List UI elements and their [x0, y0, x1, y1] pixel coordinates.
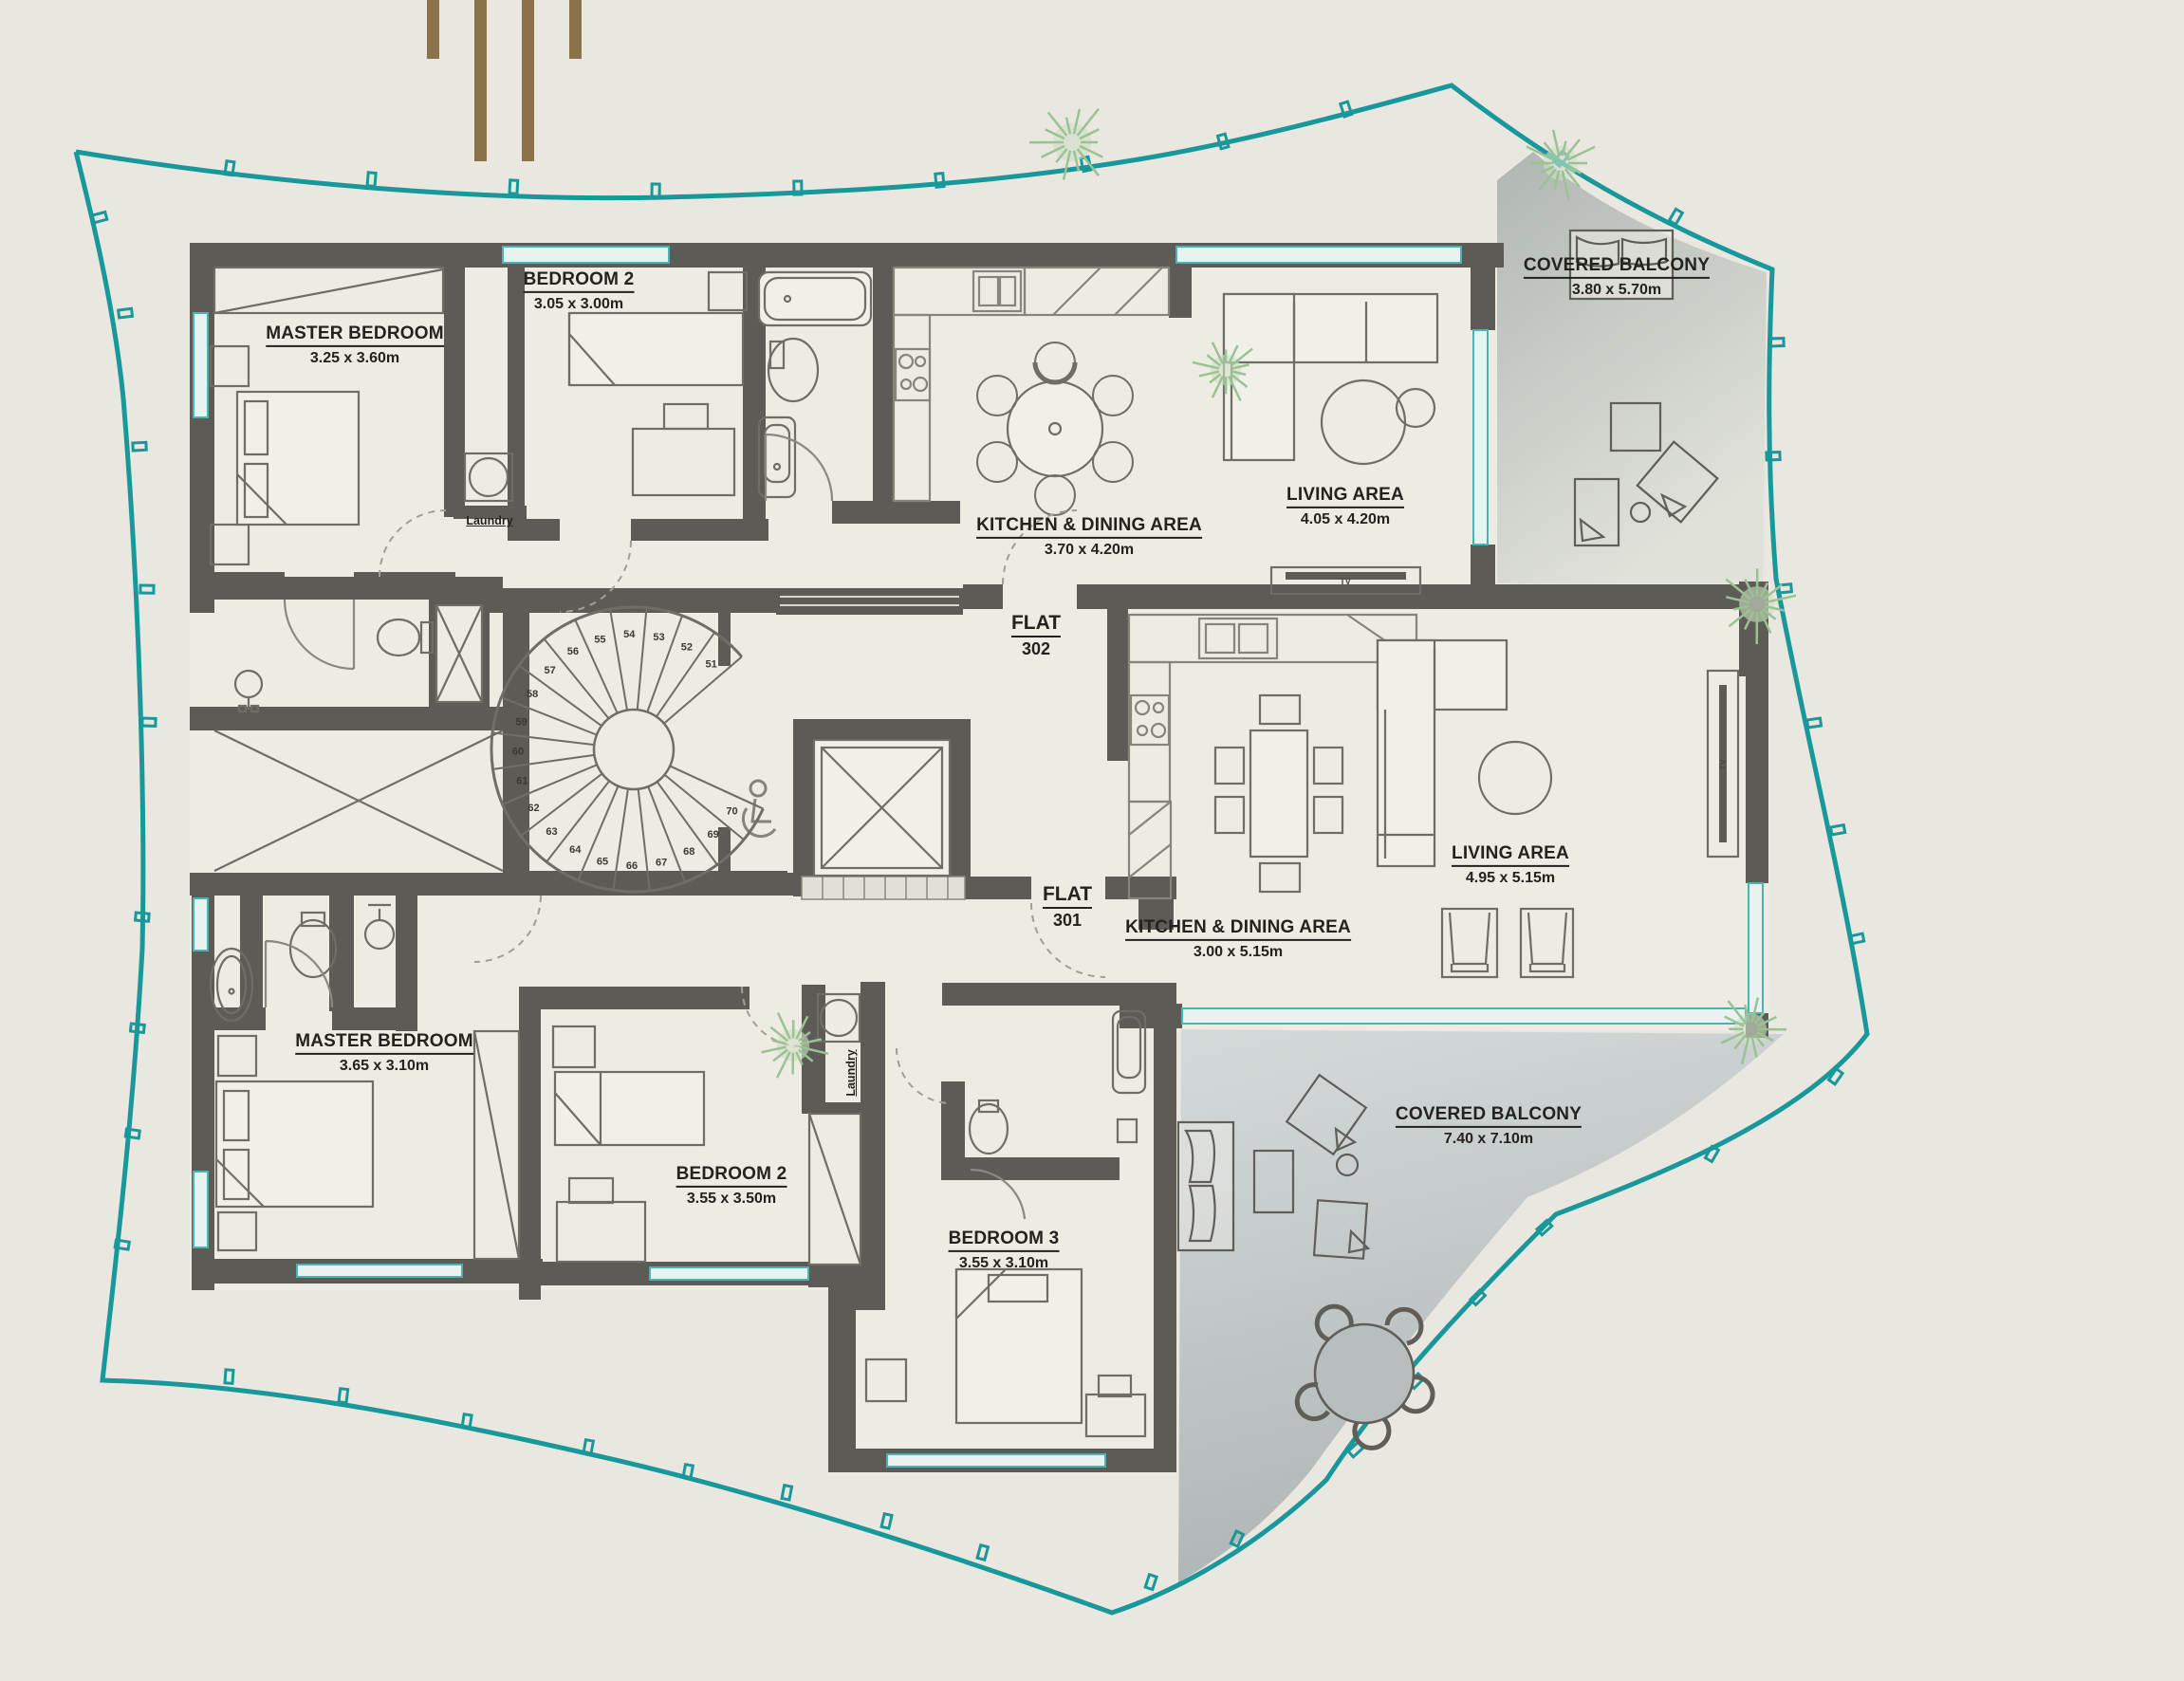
- stair-step-number: 65: [597, 856, 608, 867]
- stair-step-number: 69: [707, 829, 718, 840]
- room-label-302-bedroom2: BEDROOM 23.05 x 3.00m: [524, 269, 635, 313]
- stair-step-number: 66: [626, 860, 638, 872]
- stair-step-number: 63: [546, 826, 557, 838]
- room-label-302-living: LIVING AREA4.05 x 4.20m: [1286, 485, 1404, 528]
- entry-mat: [802, 877, 965, 899]
- bed-301-bedroom3-icon: [956, 1269, 1082, 1423]
- room-label-302-balcony: COVERED BALCONY3.80 x 5.70m: [1524, 255, 1710, 299]
- logo-bars-icon: [427, 0, 582, 161]
- flat-301-label: FLAT301: [1043, 883, 1092, 931]
- laundry-302-label: Laundry: [466, 514, 512, 527]
- covered-balcony-top-area: [1497, 152, 1767, 583]
- room-label-301-balcony: COVERED BALCONY7.40 x 7.10m: [1396, 1104, 1582, 1148]
- stair-step-number: 58: [527, 689, 538, 700]
- stair-step-number: 53: [653, 632, 664, 643]
- tv-301-label: TV: [1718, 759, 1728, 770]
- stair-step-number: 61: [516, 775, 527, 786]
- stair-step-number: 55: [594, 634, 605, 645]
- stair-step-number: 68: [683, 846, 694, 858]
- tv-302-label: TV: [1340, 577, 1351, 586]
- room-label-301-bedroom3: BEDROOM 33.55 x 3.10m: [949, 1228, 1060, 1272]
- laundry-301-label: Laundry: [844, 1049, 858, 1096]
- flat-302-label: FLAT302: [1011, 612, 1061, 659]
- stair-step-number: 60: [512, 746, 524, 757]
- balcony-bottom-sofa-icon: [1178, 1122, 1233, 1250]
- elevator-icon: [814, 740, 950, 876]
- shaft-x-icon: [436, 605, 482, 702]
- stair-step-number: 52: [681, 642, 693, 654]
- stair-step-number: 56: [567, 646, 579, 657]
- stair-step-number: 57: [544, 665, 555, 676]
- room-label-301-bedroom2: BEDROOM 23.55 x 3.50m: [676, 1164, 787, 1208]
- room-label-301-living: LIVING AREA4.95 x 5.15m: [1452, 843, 1569, 887]
- room-label-302-master: MASTER BEDROOM3.25 x 3.60m: [266, 323, 444, 367]
- stair-step-number: 70: [726, 806, 737, 818]
- bathtub-302-icon: [759, 272, 871, 325]
- stair-step-number: 54: [623, 629, 636, 640]
- floor-plan-page: 5152535455565758596061626364656667686970…: [0, 0, 2184, 1681]
- stair-step-number: 51: [706, 658, 717, 670]
- stair-step-number: 64: [569, 844, 582, 856]
- floor-plan-drawing: 5152535455565758596061626364656667686970: [0, 0, 2184, 1681]
- room-label-301-master: MASTER BEDROOM3.65 x 3.10m: [295, 1031, 473, 1075]
- room-label-301-kitchen: KITCHEN & DINING AREA3.00 x 5.15m: [1125, 917, 1351, 961]
- room-label-302-kitchen: KITCHEN & DINING AREA3.70 x 4.20m: [976, 515, 1202, 559]
- stair-step-number: 59: [516, 716, 527, 728]
- stair-step-number: 67: [656, 857, 667, 868]
- stair-step-number: 62: [527, 803, 539, 814]
